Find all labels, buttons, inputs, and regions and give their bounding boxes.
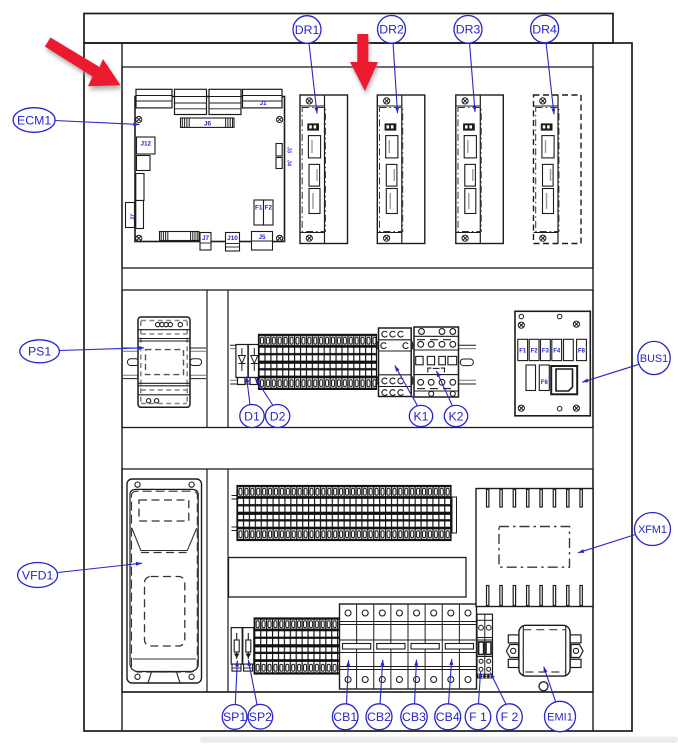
svg-text:F 2: F 2 <box>501 710 519 724</box>
svg-text:F8: F8 <box>578 349 586 355</box>
svg-text:D2: D2 <box>270 409 286 423</box>
svg-text:J5: J5 <box>258 234 266 241</box>
svg-text:PS1: PS1 <box>28 345 51 359</box>
svg-text:K2: K2 <box>448 409 463 423</box>
svg-text:F6: F6 <box>541 380 549 386</box>
svg-text:F2: F2 <box>265 205 273 212</box>
svg-text:J1: J1 <box>259 100 267 107</box>
svg-text:DR4: DR4 <box>532 22 557 36</box>
svg-text:J4: J4 <box>286 160 292 166</box>
svg-text:J10: J10 <box>227 235 238 242</box>
svg-text:F 1: F 1 <box>469 710 487 724</box>
svg-text:CB3: CB3 <box>402 710 426 724</box>
svg-text:J6: J6 <box>204 120 212 127</box>
svg-text:F4: F4 <box>553 349 561 355</box>
svg-text:CB4: CB4 <box>436 710 460 724</box>
svg-text:XFM1: XFM1 <box>638 524 667 536</box>
svg-text:ECM1: ECM1 <box>17 113 51 127</box>
svg-text:F3: F3 <box>542 349 550 355</box>
svg-text:F1: F1 <box>519 349 527 355</box>
svg-text:F2: F2 <box>531 349 539 355</box>
svg-text:DR2: DR2 <box>379 23 404 37</box>
svg-text:J7: J7 <box>202 235 210 242</box>
svg-text:F1: F1 <box>255 205 263 212</box>
svg-text:J3: J3 <box>286 147 292 153</box>
svg-text:CB1: CB1 <box>333 710 357 724</box>
svg-text:CB2: CB2 <box>367 710 391 724</box>
svg-text:DR1: DR1 <box>295 23 320 37</box>
svg-text:D1: D1 <box>244 409 260 423</box>
svg-text:EMI1: EMI1 <box>547 711 573 723</box>
svg-text:DR3: DR3 <box>456 23 481 37</box>
svg-text:J2: J2 <box>129 214 135 220</box>
svg-text:VFD1: VFD1 <box>22 568 54 582</box>
svg-text:J12: J12 <box>140 141 151 148</box>
svg-text:SP2: SP2 <box>249 710 272 724</box>
svg-text:SP1: SP1 <box>223 710 246 724</box>
svg-text:BUS1: BUS1 <box>640 353 668 365</box>
svg-text:K1: K1 <box>413 409 428 423</box>
